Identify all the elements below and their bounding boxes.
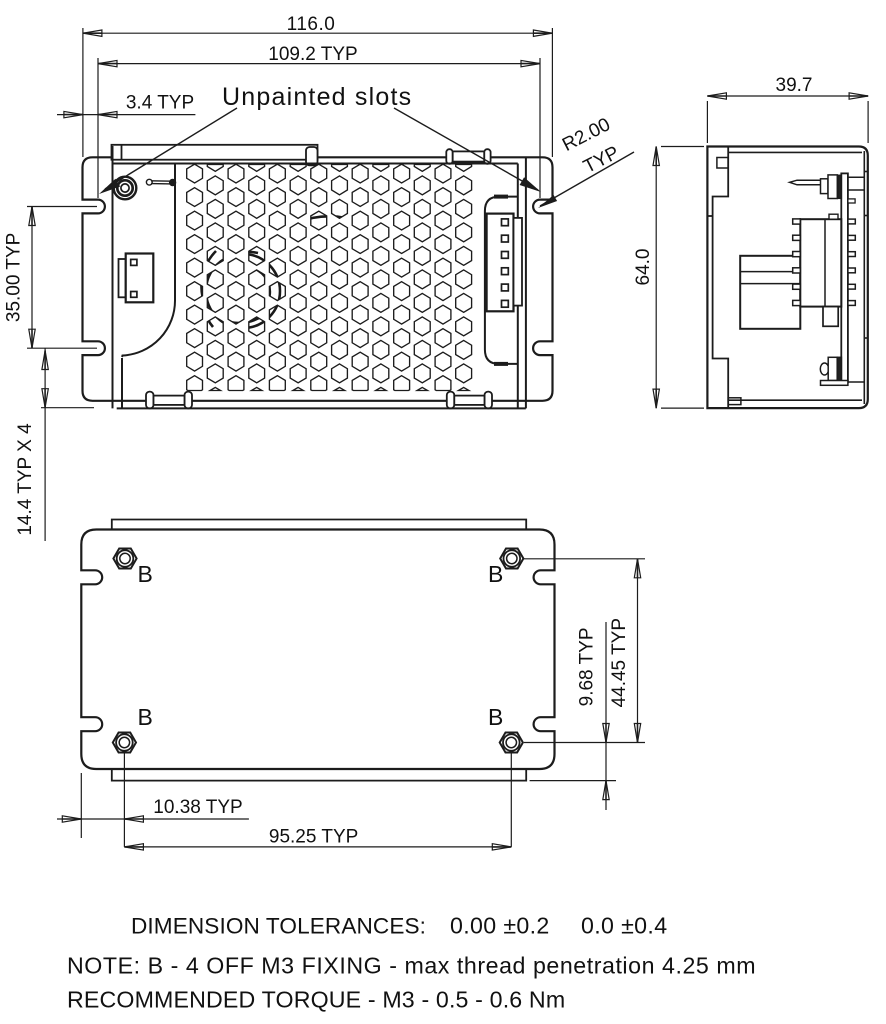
svg-text:TYP: TYP (580, 142, 622, 177)
svg-text:B: B (488, 561, 503, 587)
svg-text:64.0: 64.0 (633, 249, 654, 286)
svg-text:B: B (488, 704, 503, 730)
svg-text:14.4 TYP X 4: 14.4 TYP X 4 (15, 423, 36, 536)
svg-text:44.45 TYP: 44.45 TYP (609, 618, 630, 707)
svg-text:9.68 TYP: 9.68 TYP (577, 627, 598, 706)
svg-text:10.38 TYP: 10.38 TYP (153, 797, 242, 818)
svg-text:35.00 TYP: 35.00 TYP (4, 233, 25, 322)
svg-text:Unpainted slots: Unpainted slots (222, 83, 412, 111)
svg-text:39.7: 39.7 (776, 75, 813, 96)
svg-text:116.0: 116.0 (287, 14, 336, 35)
svg-text:3.4 TYP: 3.4 TYP (126, 93, 194, 114)
svg-text:95.25 TYP: 95.25 TYP (269, 827, 358, 848)
svg-text:DIMENSION TOLERANCES:0.00 ±0.2: DIMENSION TOLERANCES:0.00 ±0.20.0 ±0.4 (131, 913, 667, 939)
svg-text:NOTE: B - 4 OFF M3 FIXING - ma: NOTE: B - 4 OFF M3 FIXING - max thread p… (67, 953, 756, 979)
svg-text:RECOMMENDED TORQUE - M3 - 0.5: RECOMMENDED TORQUE - M3 - 0.5 - 0.6 Nm (67, 987, 565, 1013)
svg-text:B: B (138, 704, 153, 730)
svg-text:B: B (138, 561, 153, 587)
svg-text:109.2 TYP: 109.2 TYP (268, 44, 357, 65)
